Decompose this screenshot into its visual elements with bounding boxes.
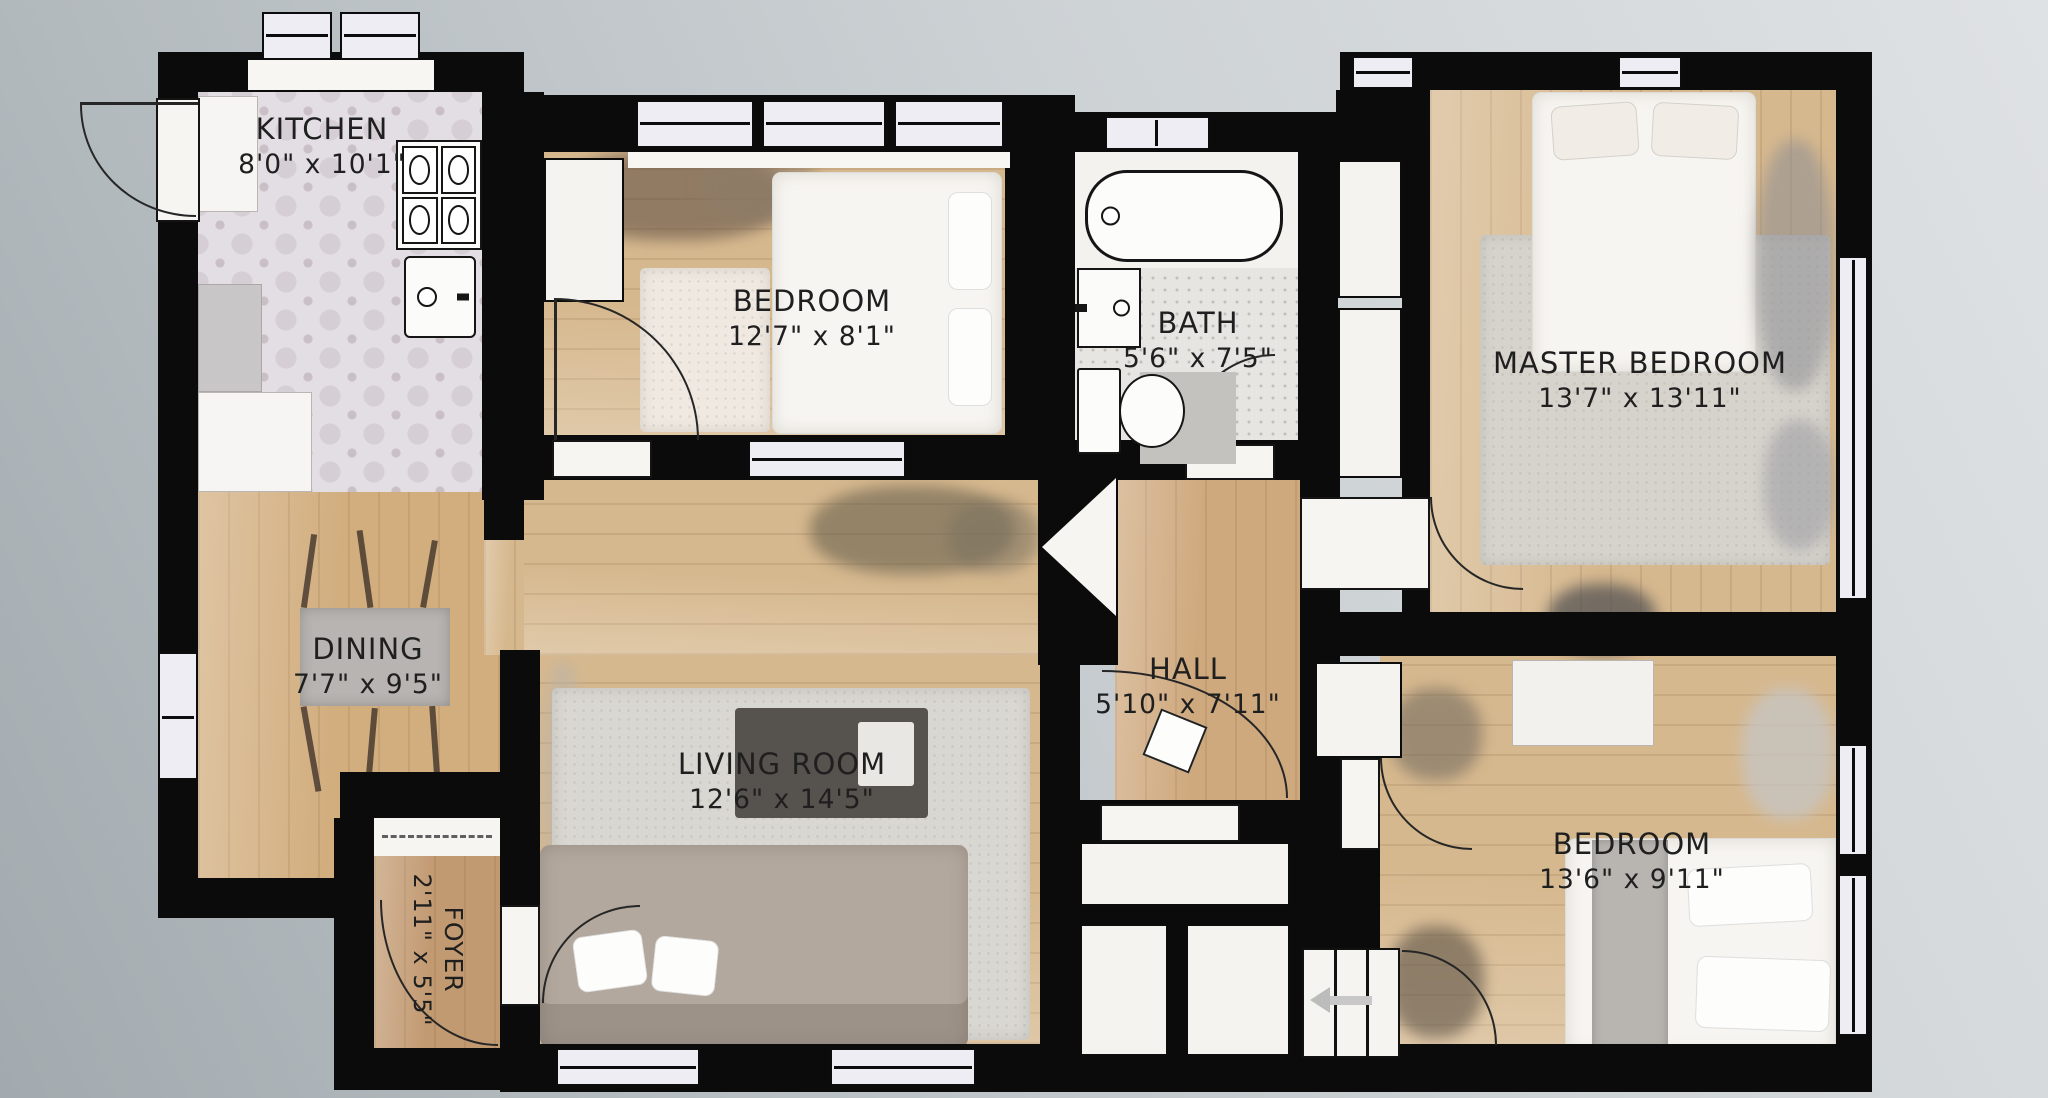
door-gap <box>1300 497 1430 590</box>
door-gap <box>1340 758 1380 850</box>
window-sill <box>248 60 434 90</box>
room-dimensions: 8'0" x 10'1" <box>238 149 406 180</box>
room-name: BEDROOM <box>1539 827 1725 861</box>
wall <box>1402 90 1430 497</box>
pillow <box>948 308 992 406</box>
stove-burner-icon <box>402 197 438 245</box>
floor-plan-page: { "plan": { "type": "apartment-floor-pla… <box>0 0 2048 1098</box>
room-name: BATH <box>1123 306 1273 340</box>
window <box>748 440 906 478</box>
stairs-arrow-icon <box>1330 996 1372 1005</box>
wall <box>1340 52 1872 90</box>
door-gap <box>500 905 540 1006</box>
closet <box>1338 160 1402 298</box>
room-name: HALL <box>1095 652 1281 686</box>
window <box>1105 116 1210 150</box>
toilet <box>1077 368 1121 454</box>
pillow <box>1550 101 1640 161</box>
wall <box>1080 906 1290 924</box>
door-swing <box>80 105 196 217</box>
room-name: MASTER BEDROOM <box>1493 346 1787 380</box>
window <box>340 12 420 60</box>
window <box>762 100 886 148</box>
closet <box>1080 924 1168 1056</box>
room-label-bedroom-top: BEDROOM 12'7" x 8'1" <box>728 284 896 352</box>
wall <box>1298 112 1338 480</box>
window <box>894 100 1004 148</box>
window <box>1618 56 1682 89</box>
room-dimensions: 5'10" x 7'11" <box>1095 689 1281 720</box>
wall <box>1340 850 1380 948</box>
wall <box>1300 478 1340 497</box>
toilet <box>1119 374 1185 448</box>
room-label-living-room: LIVING ROOM 12'6" x 14'5" <box>678 747 886 815</box>
bathtub <box>1085 170 1283 262</box>
window <box>1838 874 1868 1036</box>
window-sill <box>628 152 1010 168</box>
closet <box>1080 842 1290 906</box>
clutter-blob <box>1742 688 1834 820</box>
stove <box>396 140 482 250</box>
wall <box>1005 95 1075 480</box>
room-dimensions: 12'7" x 8'1" <box>728 321 896 352</box>
room-dimensions: 13'7" x 13'11" <box>1493 383 1787 414</box>
room-dimensions: 13'6" x 9'11" <box>1539 864 1725 895</box>
closet <box>1315 662 1402 758</box>
room-dimensions: 2'11" x 5'5" <box>408 873 436 1026</box>
room-name: LIVING ROOM <box>678 747 886 781</box>
window <box>262 12 332 60</box>
window <box>830 1048 976 1086</box>
room-label-bedroom-bottom: BEDROOM 13'6" x 9'11" <box>1539 827 1725 895</box>
stove-burner-icon <box>441 197 477 245</box>
kitchen-appliance <box>198 284 262 392</box>
wall <box>1340 612 1872 656</box>
room-name: FOYER <box>439 873 468 1026</box>
kitchen-counter <box>198 392 312 492</box>
wall <box>1040 655 1080 1090</box>
window <box>1838 256 1868 600</box>
pillow <box>948 192 992 290</box>
door-gap <box>1100 804 1240 842</box>
floor-plan: KITCHEN 8'0" x 10'1" BEDROOM 12'7" x 8'1… <box>0 0 2048 1098</box>
window <box>556 1048 700 1086</box>
room-dimensions: 7'7" x 9'5" <box>293 669 443 700</box>
room-label-master-bedroom: MASTER BEDROOM 13'7" x 13'11" <box>1493 346 1787 414</box>
pillow <box>1695 956 1831 1033</box>
kitchen-sink <box>404 256 476 338</box>
desk <box>1512 660 1654 746</box>
window <box>636 100 754 148</box>
room-name: DINING <box>293 632 443 666</box>
closet <box>1186 924 1290 1056</box>
stairs-arrow-icon <box>1310 987 1330 1013</box>
stairs <box>1302 948 1400 1058</box>
stove-burner-icon <box>441 146 477 194</box>
wall <box>158 220 198 652</box>
room-label-hall: HALL 5'10" x 7'11" <box>1095 652 1281 720</box>
stove-burner-icon <box>402 146 438 194</box>
room-name: KITCHEN <box>238 112 406 146</box>
dashed-threshold <box>374 818 500 856</box>
wall <box>484 440 524 540</box>
pillow <box>650 935 720 997</box>
door-gap <box>552 440 652 478</box>
room-name: BEDROOM <box>728 284 896 318</box>
window <box>1352 56 1414 89</box>
clutter-blob <box>1764 420 1834 550</box>
pillow <box>1651 102 1740 160</box>
closet <box>1338 308 1402 478</box>
window <box>1838 744 1868 856</box>
room-dimensions: 5'6" x 7'5" <box>1123 343 1273 374</box>
room-label-dining: DINING 7'7" x 9'5" <box>293 632 443 700</box>
room-label-bath: BATH 5'6" x 7'5" <box>1123 306 1273 374</box>
room-label-foyer: FOYER 2'11" x 5'5" <box>408 873 468 1026</box>
window <box>158 652 198 780</box>
clutter-blob <box>948 500 1040 572</box>
wall <box>1168 924 1186 1056</box>
closet <box>544 158 624 302</box>
wall <box>158 780 198 880</box>
wall <box>500 650 540 905</box>
room-dimensions: 12'6" x 14'5" <box>678 784 886 815</box>
room-label-kitchen: KITCHEN 8'0" x 10'1" <box>238 112 406 180</box>
